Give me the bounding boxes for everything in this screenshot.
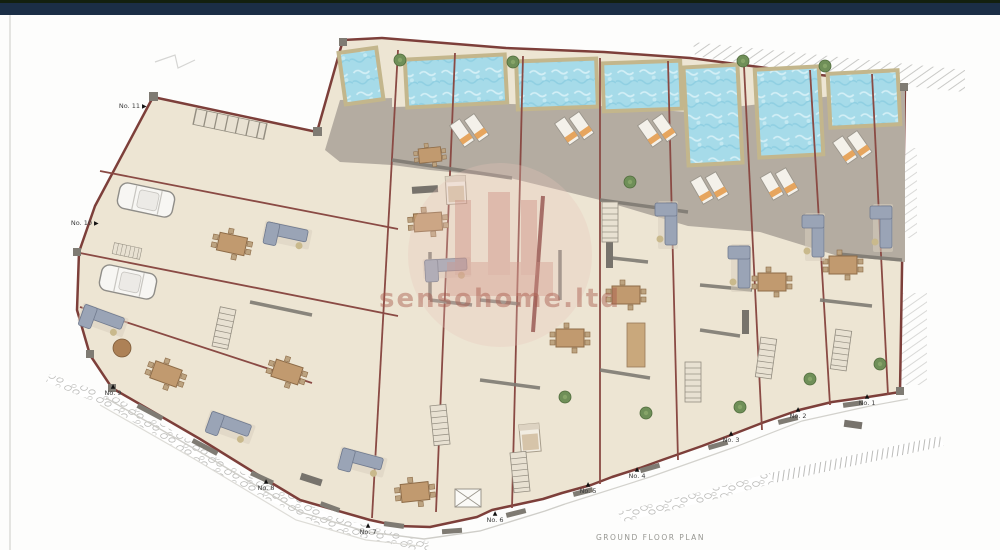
plan-title: GROUND FLOOR PLAN [596, 533, 705, 542]
unit-label-10: No. 10 [71, 219, 92, 227]
pool [828, 70, 901, 128]
stairs [602, 202, 618, 242]
sofa [870, 204, 893, 252]
unit-label-6: No. 6 [487, 516, 504, 524]
sofa [802, 213, 825, 261]
bed [519, 423, 541, 453]
site-sketch [155, 55, 195, 68]
floorplan-drawing: sensohome.ltd ▲ No. 1 ▲ No. 2 ▲ No. 3 ▲ … [0, 0, 1000, 550]
unit-label-11: No. 11 [119, 102, 140, 110]
plant-icon [624, 176, 636, 188]
unit-label-3: No. 3 [723, 436, 740, 444]
pool [683, 65, 742, 166]
unit-marker-icon: ▶ [142, 103, 147, 110]
unit-label-7: No. 7 [360, 528, 377, 536]
plant-icon [559, 391, 571, 403]
unit-label-2: No. 2 [790, 412, 807, 420]
unit-label-9: No. 9 [105, 389, 122, 397]
plant-icon [874, 358, 886, 370]
unit-label-4: No. 4 [629, 472, 646, 480]
pool [516, 59, 598, 110]
hatched-slope [899, 293, 927, 385]
plant-icon [737, 55, 749, 67]
plant-icon [804, 373, 816, 385]
watermark-text: sensohome.ltd [379, 284, 621, 314]
skylight [455, 489, 481, 507]
plant-icon [819, 60, 831, 72]
unit-label-8: No. 8 [258, 484, 275, 492]
floorplan-page: sensohome.ltd ▲ No. 1 ▲ No. 2 ▲ No. 3 ▲ … [0, 0, 1000, 550]
hatched-path [770, 436, 944, 483]
unit-label-1: No. 1 [859, 399, 876, 407]
plant-icon [640, 407, 652, 419]
sofa [655, 201, 678, 249]
pool [405, 54, 507, 107]
plant-icon [507, 56, 519, 68]
unit-marker-icon: ▶ [94, 220, 99, 227]
pool [339, 48, 384, 105]
sofa [728, 244, 751, 292]
plant-icon [734, 401, 746, 413]
unit-label-5: No. 5 [580, 487, 597, 495]
stairs [685, 362, 701, 402]
plant-icon [394, 54, 406, 66]
round-table [113, 339, 131, 357]
